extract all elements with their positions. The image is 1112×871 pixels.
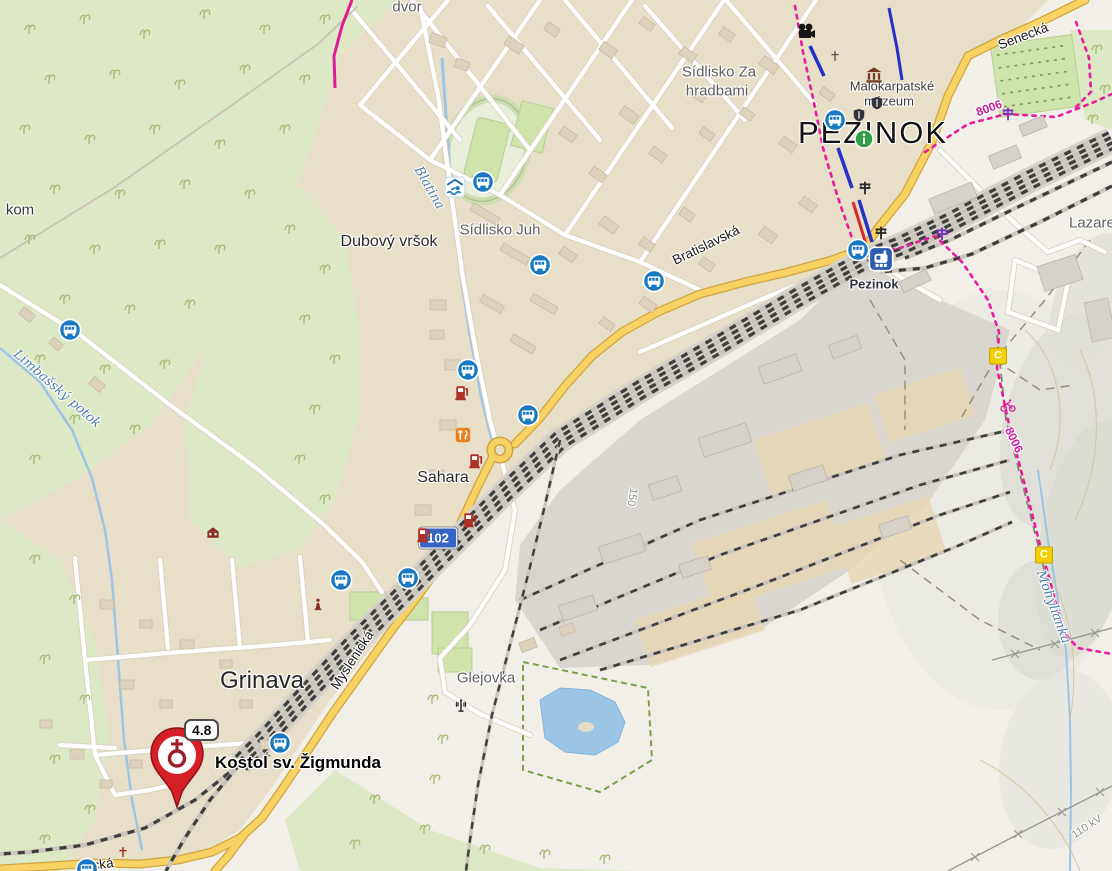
wayside-cross-icon[interactable] xyxy=(116,845,130,859)
bus-stop-icon[interactable] xyxy=(529,254,552,277)
tourist-info-icon[interactable] xyxy=(854,129,874,149)
fuel-station-icon[interactable] xyxy=(415,525,434,544)
level-crossing-icon[interactable] xyxy=(872,224,890,242)
bus-stop-icon[interactable] xyxy=(643,270,666,293)
fuel-station-icon[interactable] xyxy=(453,383,472,402)
wayside-cross-icon[interactable] xyxy=(828,49,842,63)
bus-stop-icon[interactable] xyxy=(59,319,82,342)
restaurant-icon[interactable] xyxy=(454,426,472,444)
swimming-pool-icon[interactable] xyxy=(444,176,466,198)
cinema-icon[interactable] xyxy=(796,21,816,41)
rating-badge[interactable]: 4.8 xyxy=(184,719,219,741)
museum-icon[interactable] xyxy=(865,66,884,85)
bus-stop-icon[interactable] xyxy=(457,359,480,382)
level-crossing-icon[interactable] xyxy=(933,225,951,243)
train-station-icon[interactable] xyxy=(868,246,894,272)
map-viewport[interactable]: PEZINOKSídlisko ZahradbamiMalokarpatském… xyxy=(0,0,1112,871)
marker-label: Kostol sv. Žigmunda xyxy=(215,753,381,773)
bus-stop-icon[interactable] xyxy=(847,239,870,262)
fuel-station-icon[interactable] xyxy=(467,451,486,470)
bus-stop-icon[interactable] xyxy=(472,171,495,194)
statue-icon[interactable] xyxy=(311,597,326,612)
castle-icon[interactable] xyxy=(870,96,885,111)
fuel-station-icon[interactable] xyxy=(461,510,480,529)
cycling-icon[interactable] xyxy=(1000,398,1017,415)
level-crossing-icon[interactable] xyxy=(999,105,1017,123)
castle-icon[interactable] xyxy=(852,108,867,123)
bus-stop-icon[interactable] xyxy=(397,567,420,590)
bus-stop-icon[interactable] xyxy=(824,109,847,132)
bus-stop-icon[interactable] xyxy=(76,858,99,871)
bus-stop-icon[interactable] xyxy=(330,569,353,592)
antenna-icon[interactable] xyxy=(453,698,470,715)
bus-stop-icon[interactable] xyxy=(517,404,540,427)
level-crossing-icon[interactable] xyxy=(856,179,874,197)
manor-icon[interactable] xyxy=(205,525,221,541)
